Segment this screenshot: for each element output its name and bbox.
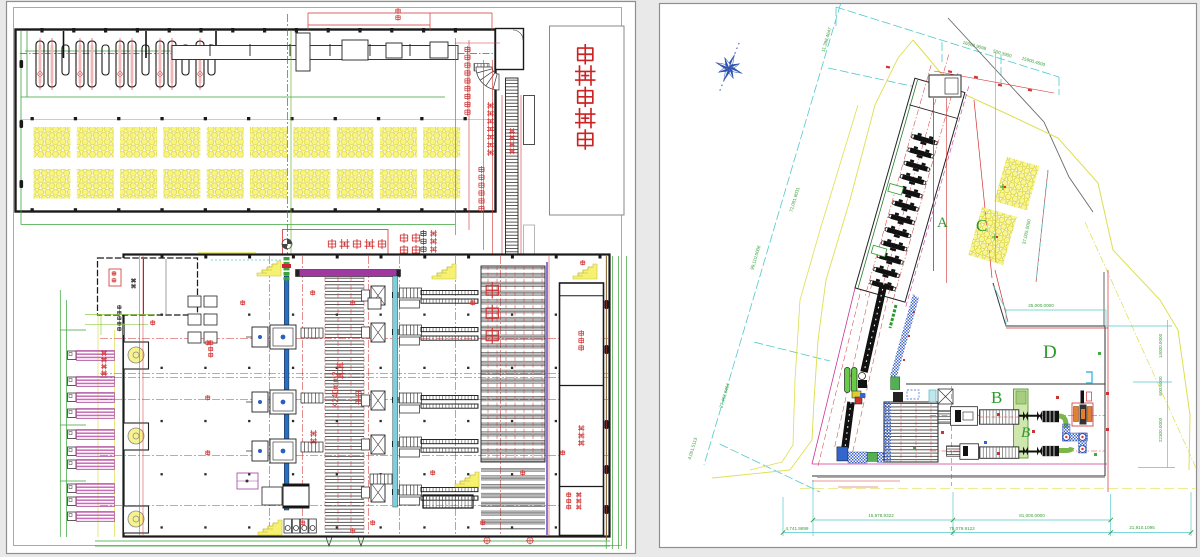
svg-text:22300.0000: 22300.0000 bbox=[1158, 417, 1163, 442]
svg-text:21,910.1095: 21,910.1095 bbox=[1129, 525, 1155, 530]
svg-text:25,000.0000: 25,000.0000 bbox=[1028, 303, 1054, 308]
svg-text:81,000.0000: 81,000.0000 bbox=[1019, 513, 1045, 518]
svg-text:600.6000: 600.6000 bbox=[1158, 376, 1163, 396]
svg-text:B: B bbox=[991, 388, 1002, 407]
svg-text:C: C bbox=[976, 216, 987, 235]
svg-text:D: D bbox=[1043, 342, 1057, 363]
svg-text:A: A bbox=[937, 215, 948, 231]
svg-text:75,079.9122: 75,079.9122 bbox=[949, 526, 975, 531]
svg-text:14000.0000: 14000.0000 bbox=[1158, 333, 1163, 358]
svg-text:15,978.9322: 15,978.9322 bbox=[868, 513, 894, 518]
svg-text:B: B bbox=[1021, 425, 1030, 441]
svg-text:4,741.9899: 4,741.9899 bbox=[786, 526, 809, 531]
